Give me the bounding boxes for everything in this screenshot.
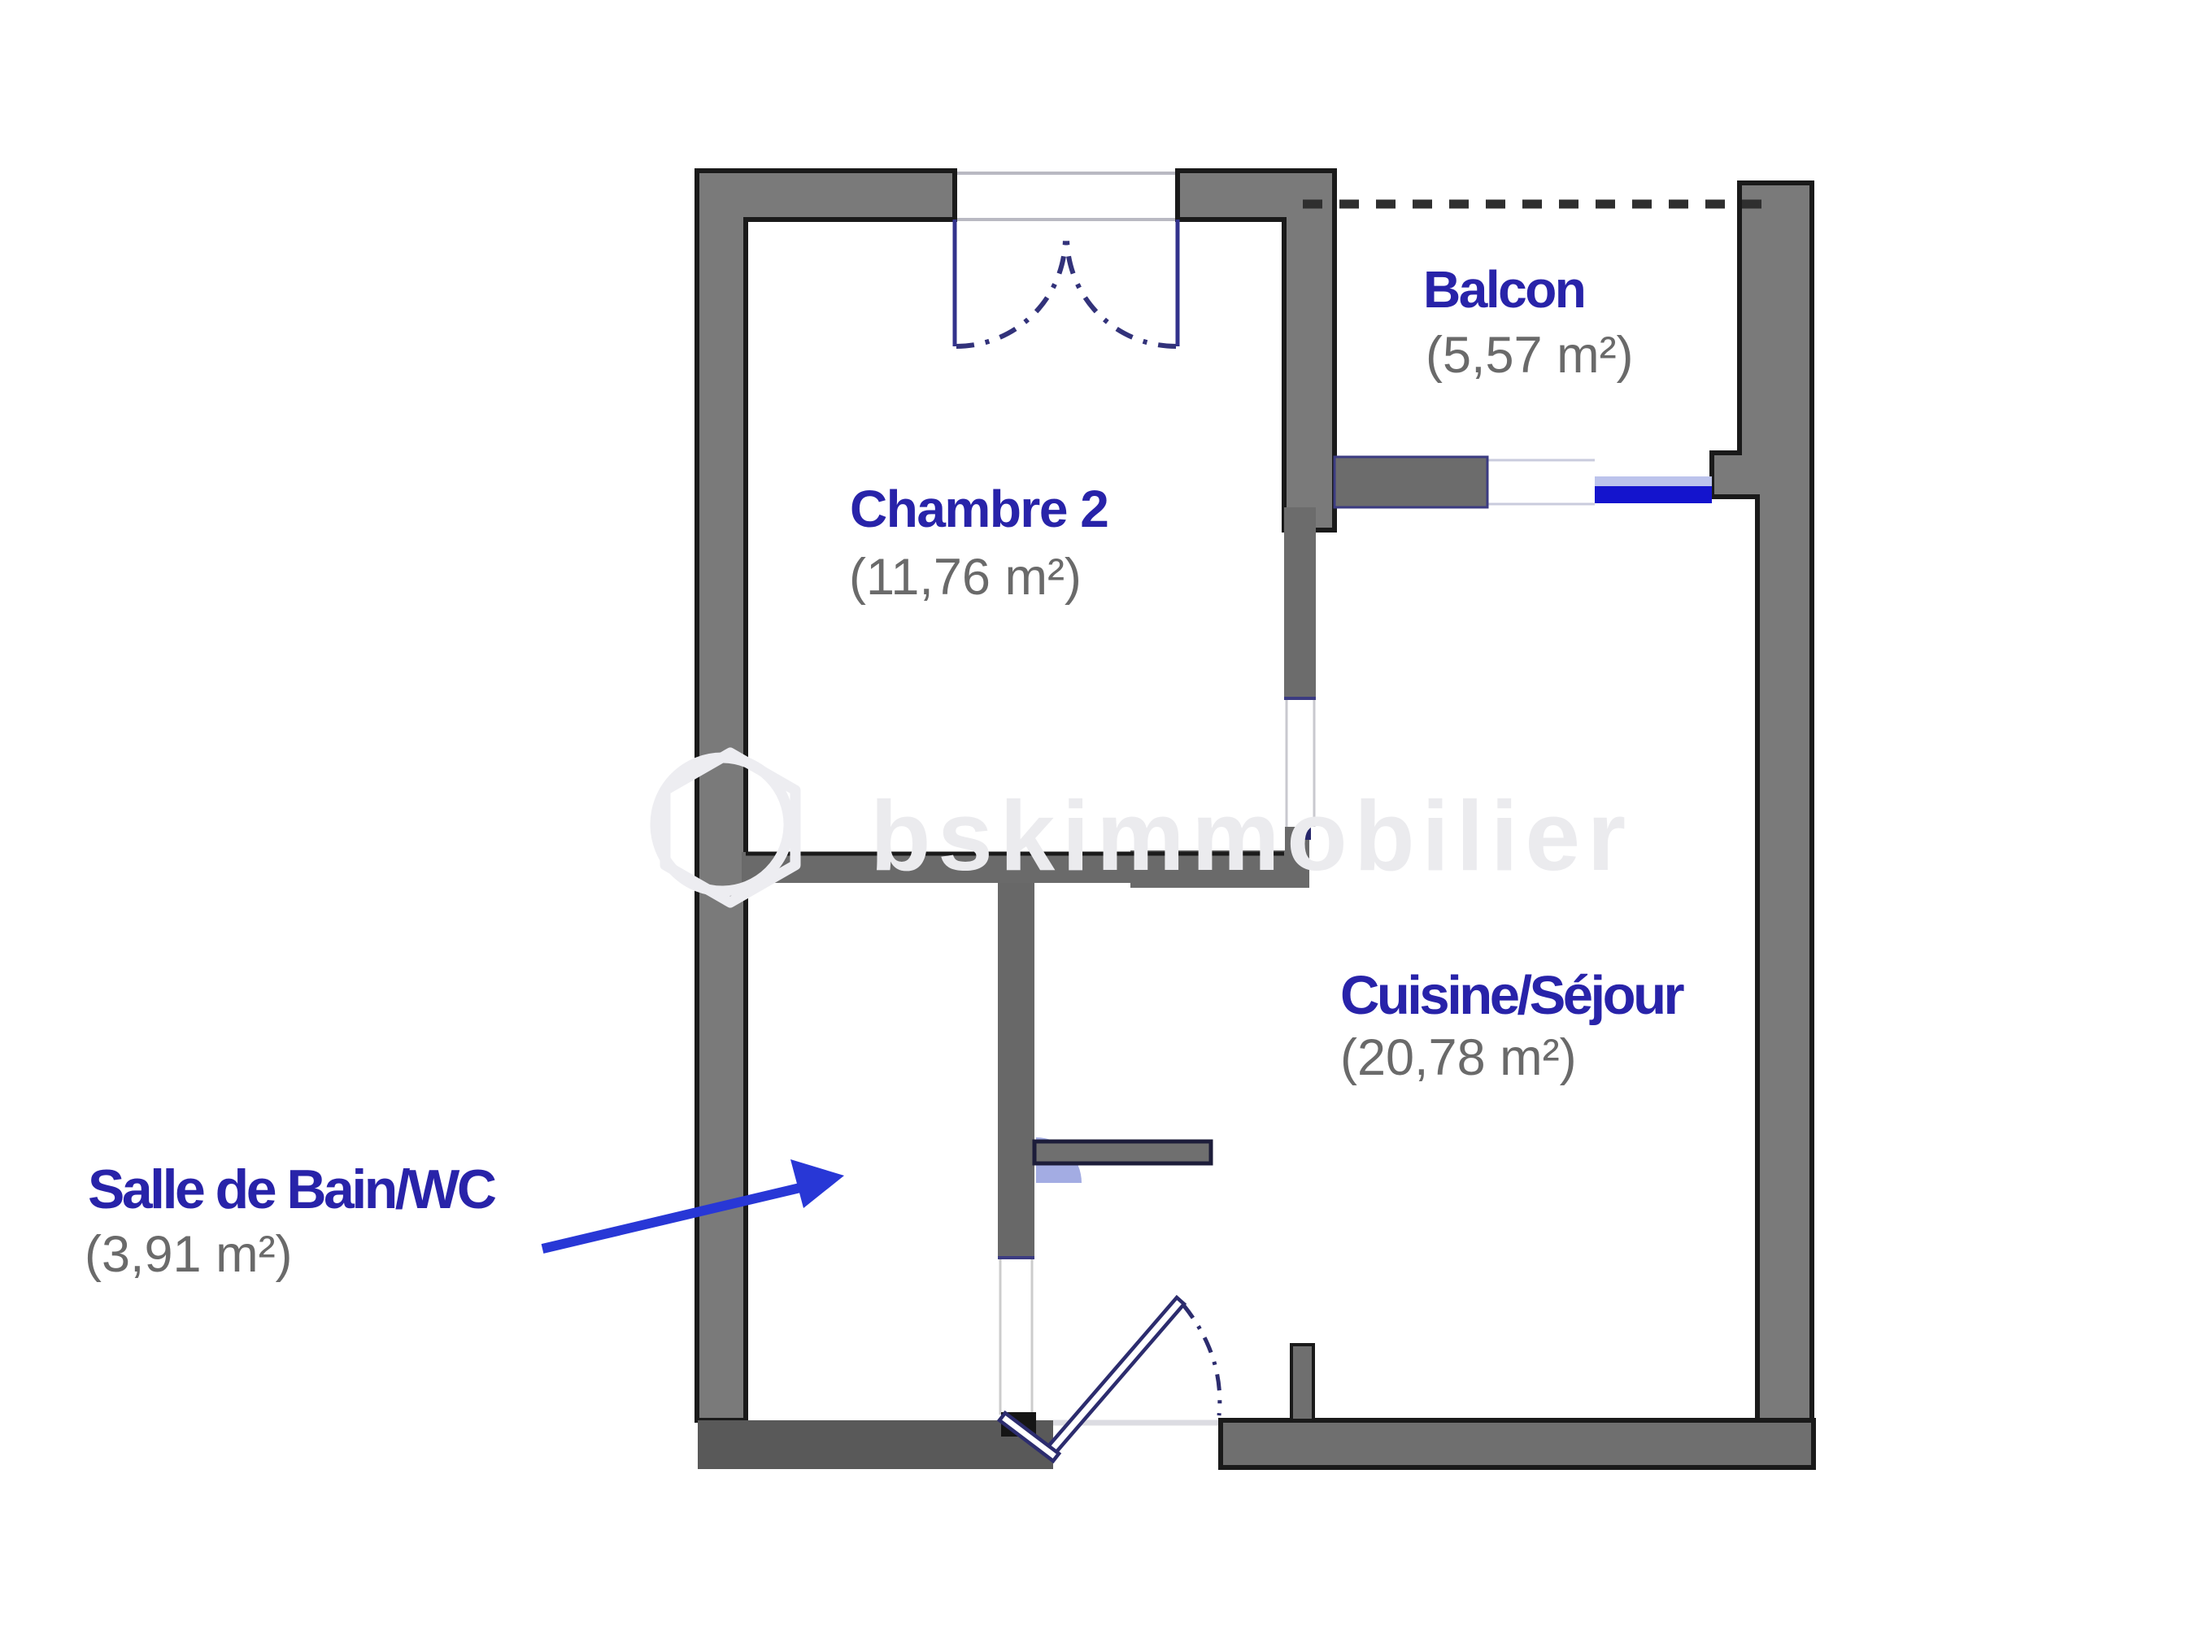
svg-text:Salle de Bain/WC: Salle de Bain/WC bbox=[88, 1159, 496, 1220]
svg-text:Chambre 2: Chambre 2 bbox=[850, 480, 1108, 538]
svg-text:Cuisine/Séjour: Cuisine/Séjour bbox=[1340, 965, 1685, 1026]
svg-text:Balcon: Balcon bbox=[1423, 260, 1584, 319]
svg-text:bskimmobilier: bskimmobilier bbox=[870, 780, 1633, 891]
svg-text:(5,57 m²): (5,57 m²) bbox=[1426, 327, 1634, 384]
svg-text:(20,78 m²): (20,78 m²) bbox=[1340, 1029, 1577, 1086]
svg-text:(11,76 m²): (11,76 m²) bbox=[849, 549, 1082, 606]
svg-text:(3,91 m²): (3,91 m²) bbox=[85, 1226, 293, 1283]
